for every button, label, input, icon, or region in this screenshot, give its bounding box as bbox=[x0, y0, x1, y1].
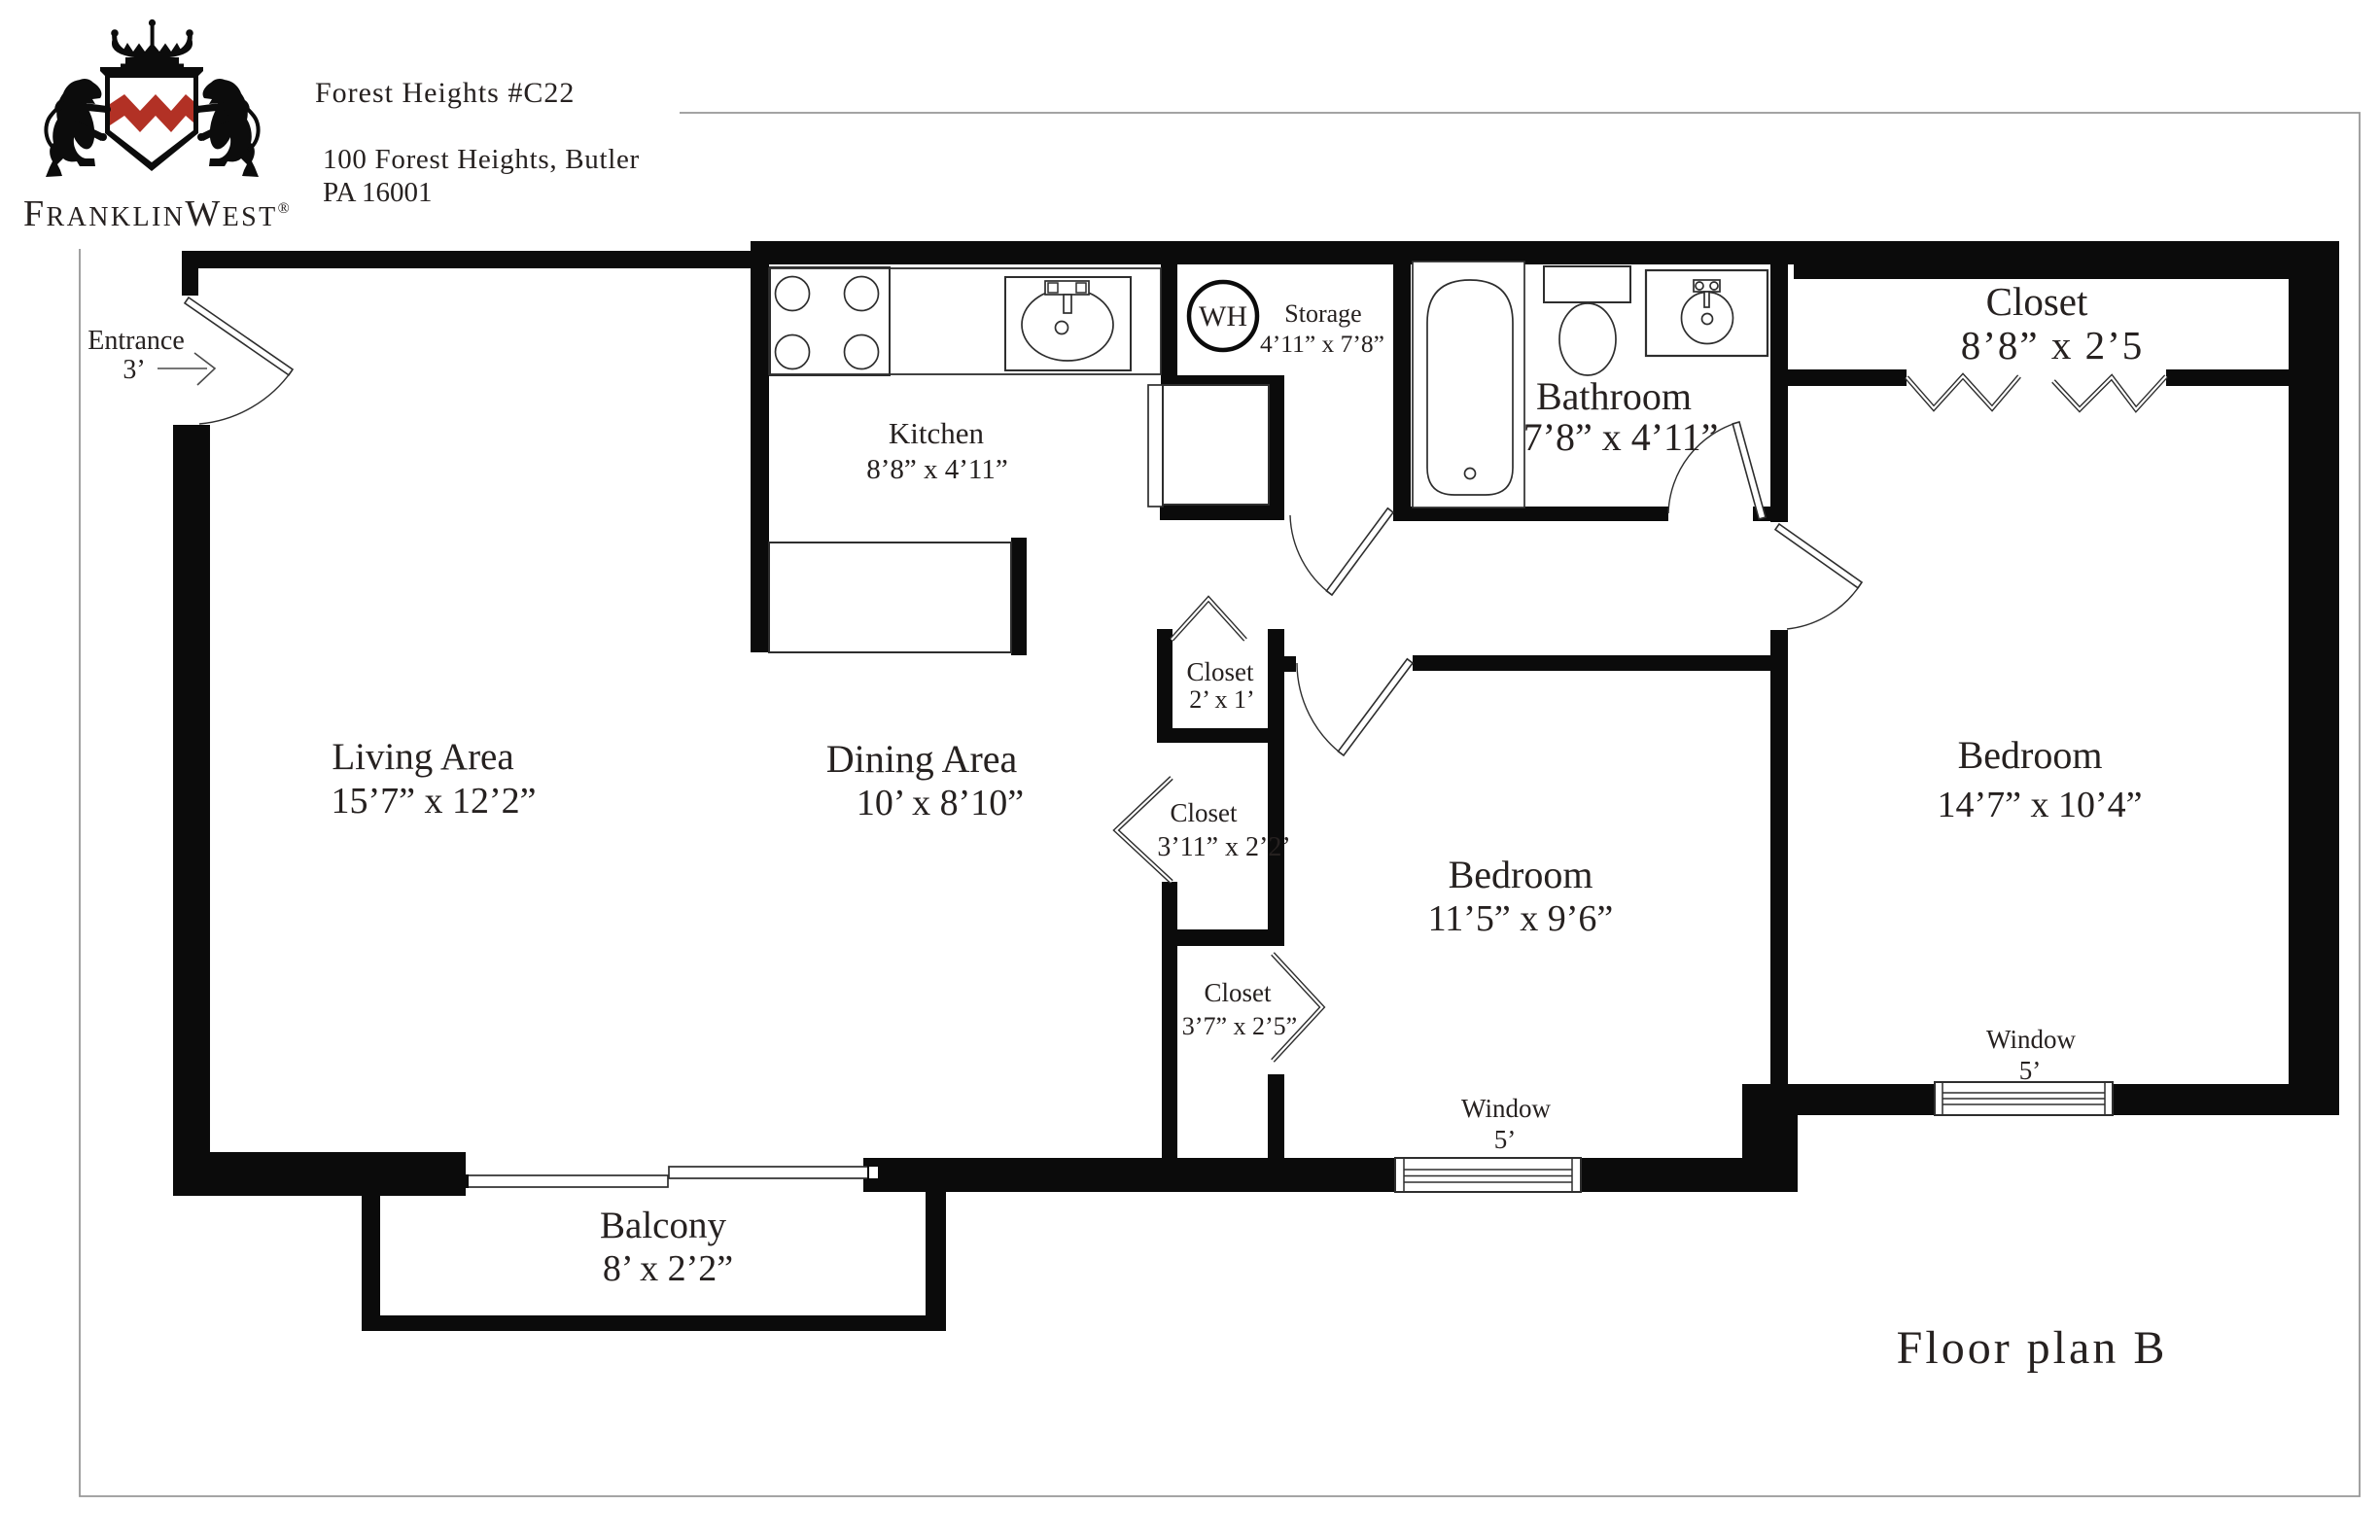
svg-text:Bathroom: Bathroom bbox=[1536, 374, 1692, 418]
svg-text:Closet: Closet bbox=[1186, 657, 1254, 686]
svg-text:7’8” x 4’11”: 7’8” x 4’11” bbox=[1523, 415, 1719, 459]
svg-text:5’: 5’ bbox=[2019, 1056, 2042, 1085]
svg-text:11’5” x 9’6”: 11’5” x 9’6” bbox=[1428, 898, 1614, 939]
svg-text:3’7” x 2’5”: 3’7” x 2’5” bbox=[1182, 1012, 1297, 1040]
svg-text:Bedroom: Bedroom bbox=[1449, 853, 1593, 896]
svg-text:Dining Area: Dining Area bbox=[826, 737, 1018, 781]
svg-text:3’11” x 2’2’: 3’11” x 2’2’ bbox=[1157, 832, 1290, 862]
svg-text:Bedroom: Bedroom bbox=[1958, 733, 2103, 777]
svg-text:100 Forest Heights, Butler: 100 Forest Heights, Butler bbox=[323, 144, 640, 175]
svg-text:Living Area: Living Area bbox=[332, 736, 513, 778]
svg-text:8’8” x 4’11”: 8’8” x 4’11” bbox=[866, 454, 1007, 485]
svg-text:8’8” x 2’5: 8’8” x 2’5 bbox=[1961, 323, 2145, 367]
svg-text:Closet: Closet bbox=[1204, 978, 1272, 1007]
svg-text:Kitchen: Kitchen bbox=[889, 416, 985, 450]
svg-text:Storage: Storage bbox=[1284, 299, 1361, 328]
svg-text:3’: 3’ bbox=[122, 355, 145, 385]
svg-text:PA 16001: PA 16001 bbox=[323, 177, 433, 208]
svg-text:Floor plan B: Floor plan B bbox=[1897, 1322, 2168, 1374]
svg-text:Balcony: Balcony bbox=[600, 1205, 726, 1246]
svg-text:WH: WH bbox=[1199, 300, 1247, 332]
svg-text:Closet: Closet bbox=[1170, 798, 1238, 827]
svg-text:Window: Window bbox=[1986, 1025, 2076, 1054]
svg-text:8’ x 2’2”: 8’ x 2’2” bbox=[603, 1248, 733, 1289]
svg-text:15’7” x 12’2”: 15’7” x 12’2” bbox=[331, 781, 536, 822]
svg-text:14’7” x 10’4”: 14’7” x 10’4” bbox=[1937, 785, 2142, 825]
svg-text:2’ x 1’: 2’ x 1’ bbox=[1189, 685, 1254, 714]
svg-text:5’: 5’ bbox=[1494, 1125, 1517, 1154]
svg-text:10’ x 8’10”: 10’ x 8’10” bbox=[857, 783, 1024, 823]
svg-text:Window: Window bbox=[1461, 1094, 1551, 1123]
svg-text:4’11” x 7’8”: 4’11” x 7’8” bbox=[1260, 330, 1384, 358]
svg-text:Closet: Closet bbox=[1986, 279, 2088, 324]
svg-text:Entrance: Entrance bbox=[87, 326, 185, 356]
svg-text:Forest Heights #C22: Forest Heights #C22 bbox=[315, 77, 575, 109]
